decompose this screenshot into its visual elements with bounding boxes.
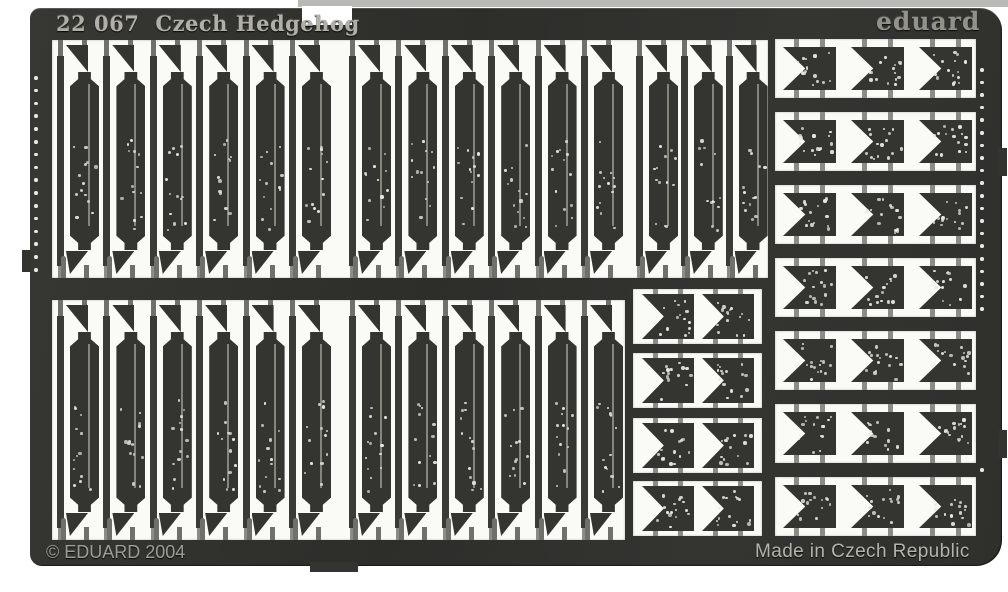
attachment-triangle (298, 45, 320, 72)
rivet-hole-dot (656, 519, 659, 522)
border-hole-dot (980, 270, 984, 274)
sprue-tab (930, 236, 935, 244)
sprue-tab (223, 265, 228, 278)
beam-strip-part (548, 72, 577, 250)
rivet-hole-dot (872, 511, 876, 515)
scanned-photoetch-sheet: 22 067Czech Hedgehog eduard © EDUARD 200… (0, 0, 1008, 592)
border-hole-dot (34, 230, 38, 234)
rivet-hole-dot (887, 300, 891, 304)
rivet-hole-dot (218, 190, 221, 193)
sprue-tab (678, 468, 683, 473)
border-hole-dot (980, 232, 984, 236)
rivet-hole-dot (265, 182, 269, 186)
rivet-hole-dot (830, 283, 832, 285)
rivet-hole-dot (870, 431, 872, 433)
frame-holding-tab (998, 148, 1007, 176)
rivet-hole-dot (885, 353, 888, 356)
sprue-tab (888, 163, 893, 171)
rivet-hole-dot (556, 424, 559, 427)
beam-strip-part (70, 72, 99, 250)
narrow-bar-part (196, 316, 203, 528)
rivet-hole-dot (748, 149, 752, 153)
rivet-hole-dot (952, 422, 956, 426)
rivet-hole-dot (813, 423, 816, 426)
sprue-tab (177, 265, 182, 278)
border-hole-dot (34, 204, 38, 208)
sprue-tab (154, 518, 159, 540)
sprue-tab (515, 527, 520, 540)
rivet-hole-dot (895, 209, 898, 212)
sprue-tab (888, 528, 893, 536)
rivet-hole-dot (936, 76, 939, 79)
rivet-hole-dot (683, 318, 685, 320)
border-hole-dot (980, 307, 984, 311)
sprue-tab (61, 256, 66, 278)
rivet-hole-dot (562, 424, 565, 427)
rivet-hole-dot (828, 135, 830, 137)
fold-line (757, 84, 759, 226)
narrow-bar-part (636, 56, 643, 266)
rivet-hole-dot (893, 274, 897, 278)
narrow-bar-part (57, 56, 64, 266)
rivet-hole-dot (737, 455, 739, 457)
sprue-tab (293, 518, 298, 540)
rivet-hole-dot (417, 403, 420, 406)
sprue-tab (353, 518, 358, 540)
rivet-hole-dot (263, 490, 266, 493)
rivet-hole-dot (600, 212, 602, 214)
rivet-hole-dot (666, 327, 669, 330)
sprue-tab (862, 90, 867, 98)
attachment-triangle (451, 305, 473, 332)
sprue-tab (539, 518, 544, 540)
border-hole-dot (34, 255, 38, 259)
rivet-hole-dot (571, 217, 573, 219)
rivet-hole-dot (725, 463, 728, 466)
rivet-hole-dot (120, 197, 123, 200)
border-hole-dot (34, 268, 38, 272)
sprue-tab (685, 256, 690, 278)
sprue-tab (713, 531, 718, 536)
sprue-tab (562, 527, 567, 540)
rivet-hole-dot (870, 354, 872, 356)
rivet-hole-dot (269, 438, 272, 441)
rivet-hole-dot (830, 150, 833, 153)
sprue-tab (930, 455, 935, 463)
bracket-window (775, 258, 976, 317)
bracket-plate-part (919, 193, 972, 236)
sprue-tab (539, 256, 544, 278)
sprue-tab (708, 265, 713, 278)
sprue-tab (862, 477, 867, 485)
rivet-hole-dot (940, 153, 944, 157)
rivet-hole-dot (186, 455, 189, 458)
rivet-hole-dot (700, 139, 703, 142)
bracket-plate-part (702, 294, 754, 339)
rivet-hole-dot (681, 438, 684, 441)
border-hole-dot (980, 93, 984, 97)
rivet-hole-dot (813, 54, 816, 57)
fold-line (426, 344, 428, 488)
sprue-tab (888, 477, 893, 485)
sprue-tab (794, 90, 799, 98)
rivet-hole-dot (952, 135, 955, 138)
rivet-hole-dot (270, 162, 273, 165)
sprue-tab (820, 112, 825, 120)
rivet-hole-dot (951, 522, 955, 526)
brand-logo-text: eduard (876, 7, 980, 36)
rivet-hole-dot (687, 513, 690, 516)
beam-strip-part (362, 72, 391, 250)
sprue-tab (888, 90, 893, 98)
rivet-hole-dot (133, 150, 136, 153)
sprue-tab (930, 112, 935, 120)
rivet-hole-dot (896, 498, 899, 501)
attachment-triangle (404, 305, 426, 332)
sprue-tab (862, 185, 867, 193)
fold-line (612, 344, 614, 488)
rivet-hole-dot (184, 222, 187, 225)
rivet-hole-dot (742, 202, 744, 204)
rivet-hole-dot (947, 69, 950, 72)
sprue-tab (713, 403, 718, 408)
rivet-hole-dot (688, 451, 691, 454)
attachment-triangle (544, 305, 566, 332)
rivet-hole-dot (719, 461, 723, 465)
rivet-hole-dot (966, 355, 969, 358)
scanner-edge-band (298, 0, 1008, 7)
origin-text: Made in Czech Republic (755, 541, 970, 563)
rivet-hole-dot (264, 402, 266, 404)
rivet-hole-dot (865, 209, 868, 212)
attachment-triangle (358, 45, 380, 72)
sprue-tab (956, 382, 961, 390)
sprue-tab (663, 265, 668, 278)
rivet-hole-dot (464, 402, 467, 405)
rivet-hole-dot (613, 185, 616, 188)
sprue-tab (608, 265, 613, 278)
rivet-hole-dot (725, 497, 727, 499)
rivet-hole-dot (808, 492, 812, 496)
rivet-hole-dot (958, 505, 960, 507)
narrow-bar-part (681, 56, 688, 266)
rivet-hole-dot (602, 490, 605, 493)
sprue-tab (585, 518, 590, 540)
rivet-hole-dot (810, 223, 813, 226)
fold-line (134, 344, 136, 488)
rivet-hole-dot (800, 504, 802, 506)
rivet-hole-dot (894, 83, 897, 86)
rivet-hole-dot (510, 178, 513, 181)
sprue-tab (888, 404, 893, 412)
rivet-hole-dot (662, 494, 665, 497)
rivet-hole-dot (138, 153, 141, 156)
attachment-triangle (544, 45, 566, 72)
rivet-hole-dot (317, 210, 320, 213)
sprue-tab (956, 477, 961, 485)
rivet-hole-dot (660, 449, 662, 451)
rivet-hole-dot (138, 422, 141, 425)
rivet-hole-dot (674, 157, 677, 160)
frame-holding-tab (310, 562, 358, 572)
border-hole-dot (34, 76, 38, 80)
rivet-hole-dot (607, 407, 609, 409)
rivet-hole-dot (805, 301, 808, 304)
rivet-hole-dot (226, 139, 228, 141)
rivet-hole-dot (384, 153, 386, 155)
rivet-hole-dot (670, 368, 673, 371)
border-hole-dot (980, 106, 984, 110)
sprue-tab (794, 382, 799, 390)
rivet-hole-dot (797, 61, 799, 63)
bracket-plate-part (851, 485, 904, 528)
rivet-hole-dot (218, 179, 222, 183)
rivet-hole-dot (130, 139, 132, 141)
border-hole-dot (980, 118, 984, 122)
rivet-hole-dot (964, 136, 968, 140)
rivet-hole-dot (754, 215, 757, 218)
rivet-hole-dot (749, 434, 752, 437)
rivet-hole-dot (934, 508, 937, 511)
border-hole-dot (34, 178, 38, 182)
sprue-tab (653, 418, 658, 423)
rivet-hole-dot (384, 416, 387, 419)
narrow-bar-part (150, 56, 157, 266)
sprue-tab (956, 404, 961, 412)
rivet-hole-dot (799, 517, 802, 520)
bracket-plate-part (702, 423, 754, 468)
rivet-hole-dot (80, 432, 83, 435)
rivet-hole-dot (732, 524, 735, 527)
sprue-tab (376, 265, 381, 278)
rivet-hole-dot (719, 197, 721, 199)
sprue-tab (820, 528, 825, 536)
rivet-hole-dot (512, 467, 515, 470)
rivet-hole-dot (942, 281, 944, 283)
rivet-hole-dot (869, 78, 872, 81)
rivet-hole-dot (433, 461, 437, 465)
rivet-hole-dot (829, 503, 831, 505)
rivet-hole-dot (559, 443, 562, 446)
rivet-hole-dot (957, 76, 960, 79)
rivet-hole-dot (89, 488, 92, 491)
rivet-hole-dot (895, 357, 898, 360)
rivet-hole-dot (662, 372, 664, 374)
sprue-tab (713, 289, 718, 294)
rivet-hole-dot (228, 471, 231, 474)
bracket-plate-part (919, 47, 972, 90)
sprue-tab (738, 531, 743, 536)
sprue-tab (930, 185, 935, 193)
sprue-tab (862, 258, 867, 266)
rivet-hole-dot (736, 334, 739, 337)
attachment-triangle (690, 45, 712, 72)
rivet-hole-dot (829, 131, 832, 134)
rivet-hole-dot (750, 152, 753, 155)
rivet-hole-dot (819, 450, 821, 452)
rivet-hole-dot (716, 520, 718, 522)
parts-block-right-brackets (775, 39, 976, 536)
beam-strip-part (739, 72, 768, 250)
sprue-tab (794, 258, 799, 266)
sprue-tab (956, 185, 961, 193)
rivet-hole-dot (816, 416, 819, 419)
rivet-hole-dot (677, 374, 680, 377)
rivet-hole-dot (948, 434, 950, 436)
beam-strip-part (594, 72, 623, 250)
rivet-hole-dot (964, 143, 968, 147)
sprue-tab (956, 163, 961, 171)
rivet-hole-dot (471, 489, 473, 491)
rivet-hole-dot (890, 500, 893, 503)
rivet-hole-dot (566, 153, 569, 156)
beam-strip-part (163, 72, 192, 250)
rivet-hole-dot (899, 363, 903, 367)
sprue-tab (794, 39, 799, 47)
rivet-hole-dot (941, 219, 944, 222)
rivet-hole-dot (667, 378, 671, 382)
beam-strip-part (362, 332, 391, 512)
narrow-bar-part (535, 56, 542, 266)
bracket-window (633, 353, 762, 408)
rivet-hole-dot (565, 140, 568, 143)
narrow-bar-part (103, 56, 110, 266)
narrow-bar-part (243, 316, 250, 528)
border-hole-dot (980, 169, 984, 173)
beam-strip-part (455, 332, 484, 512)
attachment-triangle (205, 305, 227, 332)
rivet-hole-dot (806, 364, 808, 366)
attachment-triangle (66, 305, 88, 332)
rivet-hole-dot (943, 125, 946, 128)
fold-line (227, 344, 229, 488)
rivet-hole-dot (688, 327, 691, 330)
fold-line (227, 84, 229, 226)
rivet-hole-dot (173, 222, 177, 226)
rivet-hole-dot (933, 209, 935, 211)
rivet-hole-dot (658, 181, 660, 183)
sprue-tab (930, 477, 935, 485)
rivet-hole-dot (609, 412, 613, 416)
rivet-hole-dot (801, 71, 804, 74)
narrow-bar-part (150, 316, 157, 528)
bracket-plate-part (702, 486, 754, 531)
sprue-tab (446, 518, 451, 540)
fold-line (320, 344, 322, 488)
rivet-hole-dot (937, 350, 939, 352)
copyright-text: © EDUARD 2004 (46, 542, 185, 563)
sprue-tab (469, 265, 474, 278)
sprue-tab (862, 112, 867, 120)
rivet-hole-dot (935, 515, 938, 518)
sprue-tab (888, 331, 893, 339)
beam-strip-part (694, 72, 723, 250)
sprue-tab (353, 256, 358, 278)
parts-block-mid-brackets (633, 289, 762, 536)
rivet-hole-dot (519, 199, 522, 202)
sprue-tab (713, 339, 718, 344)
rivet-hole-dot (937, 132, 940, 135)
rivet-hole-dot (958, 150, 961, 153)
rivet-hole-dot (876, 301, 879, 304)
attachment-triangle (159, 305, 181, 332)
attachment-triangle (159, 45, 181, 72)
rivet-hole-dot (820, 303, 823, 306)
rivet-hole-dot (763, 166, 767, 170)
sprue-tab (738, 353, 743, 358)
sprue-tab (608, 527, 613, 540)
sprue-tab (794, 331, 799, 339)
rivet-hole-dot (823, 199, 827, 203)
sprue-tab (678, 531, 683, 536)
border-hole-dot (980, 194, 984, 198)
rivet-hole-dot (827, 227, 830, 230)
rivet-hole-dot (91, 212, 94, 215)
border-hole-dot (980, 181, 984, 185)
sprue-tab (956, 90, 961, 98)
narrow-bar-part (289, 316, 296, 528)
attachment-triangle (590, 45, 612, 72)
border-hole-dot (34, 191, 38, 195)
sprue-tab (956, 112, 961, 120)
rivet-hole-dot (141, 456, 143, 458)
sprue-tab (399, 518, 404, 540)
sprue-tab (820, 258, 825, 266)
sprue-tab (930, 90, 935, 98)
attachment-triangle (735, 45, 757, 72)
rivet-hole-dot (462, 223, 464, 225)
border-hole-dot (980, 257, 984, 261)
rivet-hole-dot (885, 139, 888, 142)
border-hole-dot (34, 114, 38, 118)
rivet-hole-dot (526, 455, 529, 458)
rivet-hole-dot (868, 128, 871, 131)
rivet-hole-dot (556, 150, 559, 153)
rivet-hole-dot (726, 319, 729, 322)
sprue-tab (862, 39, 867, 47)
sprue-tab (888, 455, 893, 463)
border-hole-dot (34, 140, 38, 144)
beam-strip-part (116, 332, 145, 512)
fold-line (566, 344, 568, 488)
sprue-tab (888, 185, 893, 193)
narrow-bar-part (349, 316, 356, 528)
rivet-hole-dot (511, 167, 513, 169)
rivet-hole-dot (958, 212, 961, 215)
border-hole-dot (980, 295, 984, 299)
sprue-tab (794, 112, 799, 120)
sprue-tab (956, 39, 961, 47)
rivet-hole-dot (461, 432, 464, 435)
sprue-tab (177, 527, 182, 540)
sprue-tab (640, 256, 645, 278)
sprue-tab (820, 185, 825, 193)
beam-strip-part (455, 72, 484, 250)
rivet-hole-dot (132, 482, 135, 485)
attachment-triangle (404, 45, 426, 72)
parts-window-top-beams (52, 40, 768, 278)
rivet-hole-dot (884, 56, 886, 58)
narrow-bar-part (488, 316, 495, 528)
beam-strip-part (501, 72, 530, 250)
sprue-tab (154, 256, 159, 278)
rivet-hole-dot (380, 195, 383, 198)
rivet-hole-dot (418, 413, 421, 416)
narrow-bar-part (395, 316, 402, 528)
fold-line (519, 344, 521, 488)
fold-line (88, 84, 90, 226)
rivet-hole-dot (467, 149, 469, 151)
